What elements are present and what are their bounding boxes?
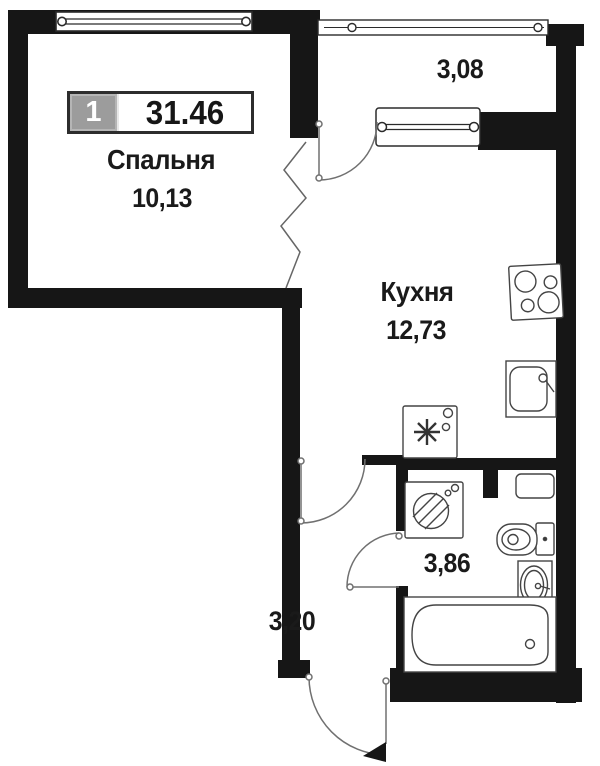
kitchen-hallway-door xyxy=(298,458,365,524)
balcony-glazing xyxy=(318,20,548,35)
kitchen-sink xyxy=(506,361,556,417)
unit-info-badge: 1 31.46 xyxy=(67,91,254,134)
balcony-door xyxy=(316,121,377,181)
bathtub xyxy=(404,597,556,672)
bedroom-area-label: 10,13 xyxy=(132,185,192,212)
zigzag-partition xyxy=(281,142,306,288)
balcony-area-label: 3,08 xyxy=(437,56,484,83)
kitchen-area-label: 12,73 xyxy=(386,317,446,344)
refrigerator xyxy=(403,406,457,458)
hallway-area-label: 3,20 xyxy=(269,608,316,635)
washing-machine xyxy=(405,482,463,538)
bedroom-window xyxy=(56,12,252,31)
ventilation-shaft xyxy=(483,458,498,498)
floor-plan: 1 31.46 Спальня 10,13 3,08 Кухня 12,73 3… xyxy=(0,0,600,766)
cabinet xyxy=(516,474,554,498)
entrance-door xyxy=(306,674,389,762)
bathroom-area-label: 3,86 xyxy=(424,550,471,577)
kitchen-window xyxy=(376,108,480,146)
toilet xyxy=(497,523,554,555)
total-area-value: 31.46 xyxy=(122,94,247,131)
kitchen-label: Кухня xyxy=(381,278,454,306)
bedroom-label: Спальня xyxy=(107,146,215,174)
room-count-badge: 1 xyxy=(70,94,119,131)
bathroom-door xyxy=(347,533,402,590)
stove xyxy=(509,264,564,321)
